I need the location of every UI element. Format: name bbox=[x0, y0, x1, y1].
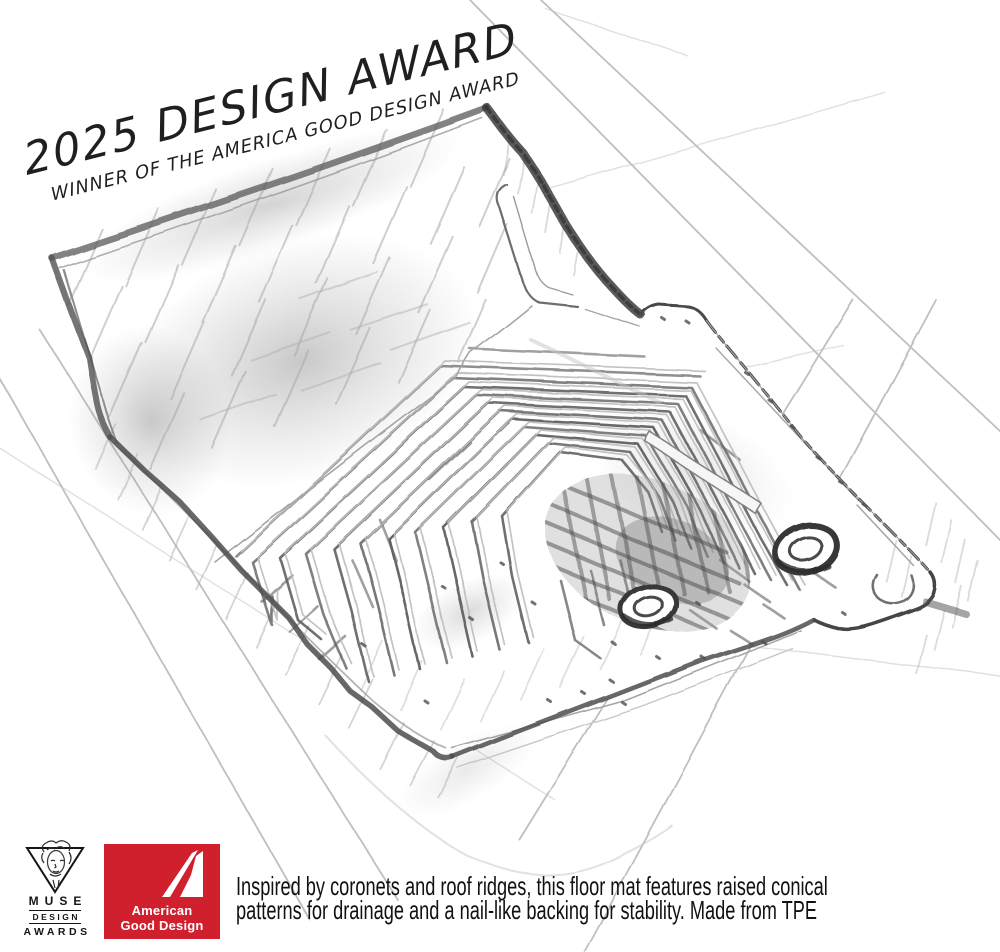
product-description: Inspired by coronets and roof ridges, th… bbox=[236, 874, 915, 922]
description-line-2: patterns for drainage and a nail-like ba… bbox=[236, 898, 915, 922]
product-image: 2025 DESIGN AWARD WINNER OF THE AMERICA … bbox=[0, 0, 1000, 952]
muse-design-awards-logo: MUSE DESIGN AWARDS bbox=[20, 834, 90, 946]
agd-logo-text-1: American bbox=[104, 904, 220, 919]
muse-logo-text-1: MUSE bbox=[20, 894, 90, 908]
muse-triangle-face-icon bbox=[23, 836, 87, 896]
muse-logo-text-3: AWARDS bbox=[20, 926, 90, 938]
muse-logo-text-2: DESIGN bbox=[29, 910, 81, 924]
agd-logo-text: American Good Design bbox=[104, 904, 220, 933]
agd-logo-text-2: Good Design bbox=[104, 919, 220, 934]
american-good-design-logo: American Good Design bbox=[104, 844, 220, 939]
